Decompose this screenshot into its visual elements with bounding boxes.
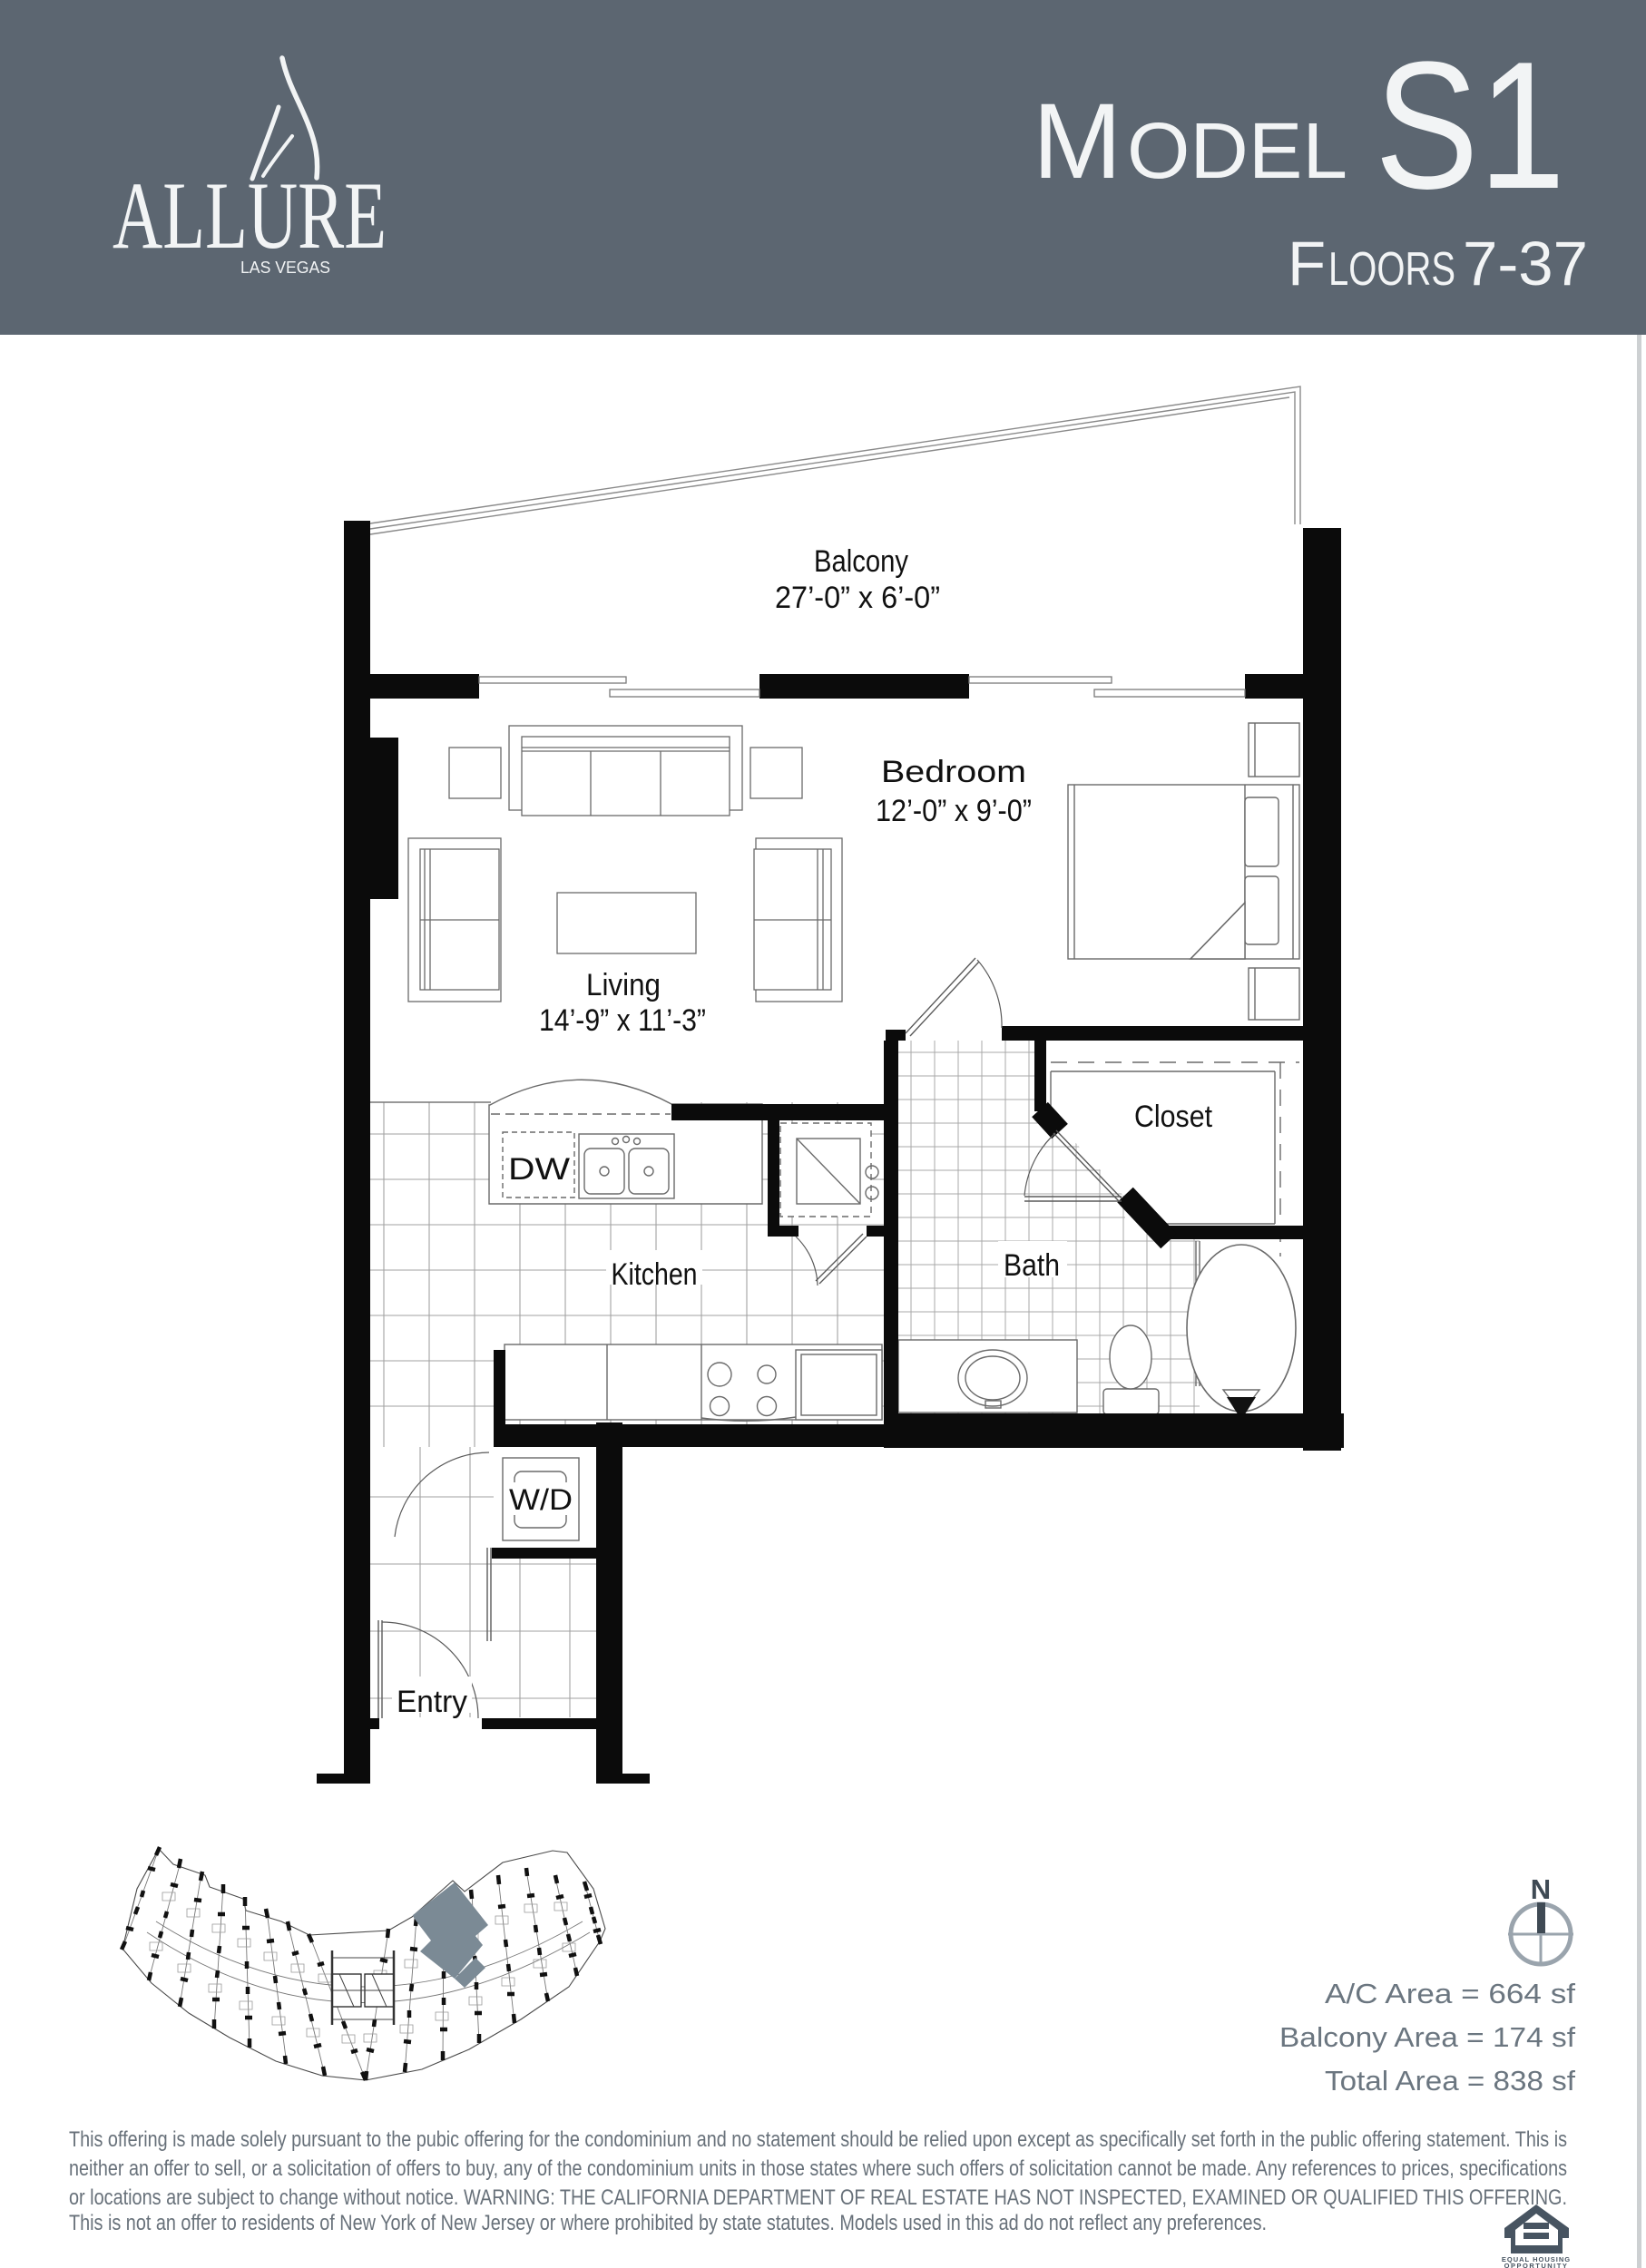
svg-text:OPPORTUNITY: OPPORTUNITY [1504, 2262, 1569, 2268]
svg-text:This offering is made solely p: This offering is made solely pursuant to… [69, 2127, 1567, 2152]
svg-text:7-37: 7-37 [1463, 229, 1588, 298]
svg-text:M: M [1033, 82, 1122, 201]
svg-text:14’-9” x 11’-3”: 14’-9” x 11’-3” [539, 1003, 706, 1038]
svg-text:DW: DW [508, 1152, 570, 1187]
svg-text:F: F [1288, 229, 1326, 298]
svg-text:A/C Area = 664 sf: A/C Area = 664 sf [1325, 1978, 1575, 2009]
svg-text:N: N [1531, 1873, 1551, 1905]
svg-text:Bedroom: Bedroom [881, 755, 1026, 789]
svg-text:Entry: Entry [397, 1685, 467, 1719]
svg-text:12’-0” x 9’-0”: 12’-0” x 9’-0” [876, 794, 1032, 828]
svg-text:LOORS: LOORS [1328, 243, 1455, 296]
svg-text:ALLURE: ALLURE [113, 162, 387, 269]
svg-text:Living: Living [586, 968, 661, 1002]
svg-text:neither an offer to sell, or a: neither an offer to sell, or a solicitat… [69, 2156, 1567, 2181]
svg-text:Bath: Bath [1004, 1248, 1060, 1283]
svg-text:27’-0” x 6’-0”: 27’-0” x 6’-0” [775, 581, 940, 615]
svg-text:LAS VEGAS: LAS VEGAS [240, 259, 330, 277]
svg-text:or locations are subject to ch: or locations are subject to change witho… [69, 2185, 1567, 2210]
svg-text:W/D: W/D [509, 1483, 573, 1516]
svg-text:ODEL: ODEL [1127, 107, 1347, 195]
svg-text:This is not an offer to reside: This is not an offer to residents of New… [69, 2211, 1267, 2235]
svg-text:Closet: Closet [1134, 1100, 1212, 1134]
svg-text:Total Area = 838 sf: Total Area = 838 sf [1325, 2065, 1575, 2097]
svg-text:Balcony Area = 174 sf: Balcony Area = 174 sf [1279, 2021, 1575, 2053]
svg-text:Balcony: Balcony [814, 544, 908, 579]
svg-text:Kitchen: Kitchen [612, 1257, 698, 1292]
svg-text:S1: S1 [1375, 24, 1565, 227]
